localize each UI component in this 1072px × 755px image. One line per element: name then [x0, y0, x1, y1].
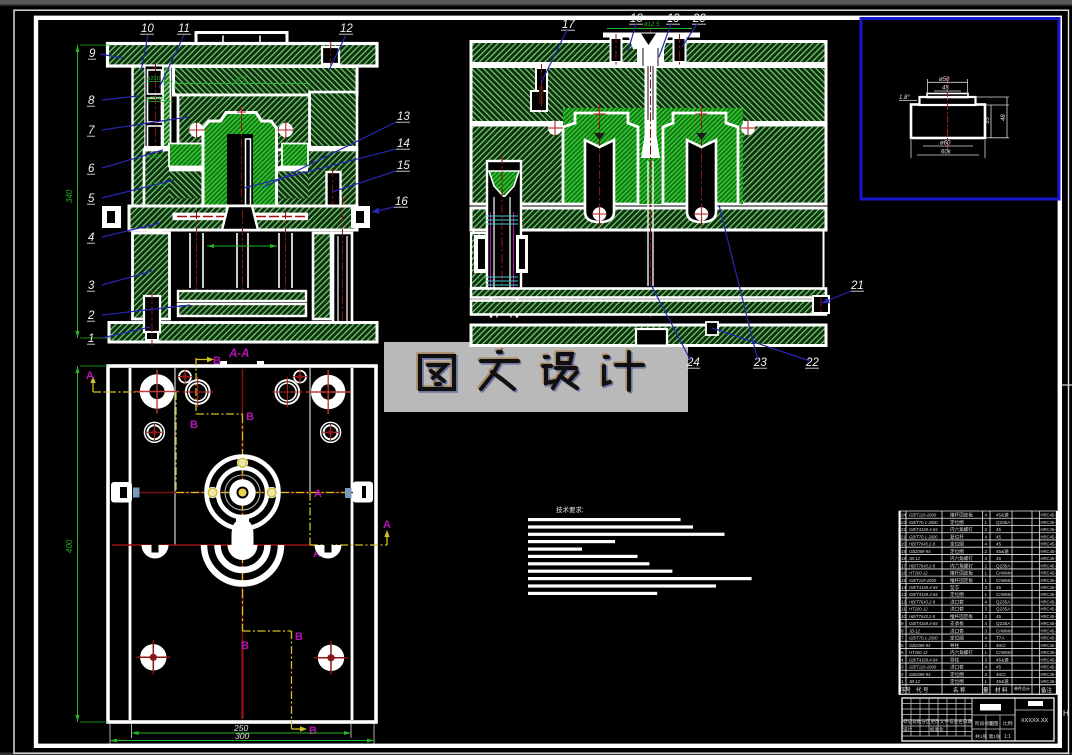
- svg-text:HT200-12: HT200-12: [909, 650, 928, 655]
- svg-text:8: 8: [901, 628, 904, 633]
- svg-text:7: 7: [901, 636, 904, 641]
- svg-text:技术要求:: 技术要求:: [556, 505, 584, 514]
- svg-text:GB/T70.1-2000: GB/T70.1-2000: [909, 636, 938, 641]
- svg-text:45: 45: [996, 527, 1002, 532]
- svg-text:3: 3: [985, 607, 988, 612]
- svg-text:定位圈: 定位圈: [950, 678, 964, 685]
- svg-text:HB/T7643.2-8: HB/T7643.2-8: [909, 614, 936, 619]
- svg-text:14: 14: [397, 138, 410, 150]
- svg-text:45: 45: [942, 86, 949, 92]
- svg-text:GB/T4169.4-84: GB/T4169.4-84: [909, 585, 938, 590]
- svg-text:定位圈: 定位圈: [950, 541, 964, 548]
- svg-text:3: 3: [985, 585, 988, 590]
- svg-text:3: 3: [985, 628, 988, 633]
- svg-text:T7A: T7A: [996, 636, 1005, 641]
- svg-text:复位杆: 复位杆: [950, 533, 964, 540]
- svg-text:HT200-12: HT200-12: [909, 571, 928, 576]
- svg-text:45: 45: [996, 665, 1002, 670]
- svg-text:1: 1: [985, 592, 988, 597]
- svg-text:GB2089-94: GB2089-94: [909, 643, 931, 648]
- svg-text:A: A: [86, 370, 94, 382]
- svg-text:GB/T70.1-2000: GB/T70.1-2000: [909, 534, 938, 539]
- svg-text:HB/T7643.2-8: HB/T7643.2-8: [909, 542, 936, 547]
- svg-text:GB2089-94: GB2089-94: [909, 549, 931, 554]
- svg-text:2: 2: [901, 672, 904, 677]
- svg-text:CrWMn: CrWMn: [996, 578, 1012, 583]
- svg-text:比例: 比例: [1003, 720, 1013, 727]
- svg-text:4: 4: [985, 556, 988, 561]
- svg-text:40Cr: 40Cr: [996, 672, 1006, 677]
- svg-text:11: 11: [178, 23, 190, 35]
- svg-text:400: 400: [65, 539, 74, 553]
- svg-text:45: 45: [996, 542, 1002, 547]
- svg-text:24: 24: [686, 357, 700, 369]
- svg-text:12: 12: [340, 23, 353, 35]
- svg-text:6: 6: [88, 163, 95, 175]
- svg-text:GB/T119-2000: GB/T119-2000: [909, 665, 937, 670]
- svg-text:9: 9: [901, 621, 904, 626]
- svg-text:340: 340: [65, 189, 74, 203]
- svg-text:GB/T4169.4-84: GB/T4169.4-84: [909, 527, 938, 532]
- svg-text:设计: 设计: [903, 726, 913, 733]
- svg-text:质量: 质量: [989, 720, 999, 727]
- svg-text:2: 2: [985, 643, 988, 648]
- svg-text:21: 21: [850, 280, 864, 292]
- svg-text:CrWMn: CrWMn: [996, 592, 1012, 597]
- svg-text:4: 4: [901, 657, 904, 662]
- svg-text:9: 9: [89, 48, 96, 60]
- svg-text:材 料: 材 料: [995, 686, 1008, 694]
- svg-text:B: B: [190, 419, 198, 431]
- svg-text:4: 4: [88, 232, 94, 244]
- svg-text:B: B: [241, 640, 249, 652]
- svg-text:A: A: [314, 488, 322, 500]
- svg-text:4: 4: [985, 542, 988, 547]
- svg-text:8: 8: [88, 95, 95, 107]
- svg-text:HT200-12: HT200-12: [909, 607, 928, 612]
- svg-text:22: 22: [805, 357, 819, 369]
- svg-text:Q235A: Q235A: [996, 520, 1011, 525]
- svg-text:1.8°: 1.8°: [899, 95, 910, 101]
- svg-text:60k: 60k: [941, 150, 952, 156]
- svg-text:单件总计: 单件总计: [1014, 685, 1030, 691]
- svg-text:6: 6: [901, 643, 904, 648]
- svg-text:45: 45: [996, 534, 1002, 539]
- svg-text:JB-12: JB-12: [908, 628, 921, 633]
- svg-text:JB-12: JB-12: [908, 679, 921, 684]
- svg-text:GB2089-94: GB2089-94: [909, 672, 931, 677]
- svg-text:XXXXX.XX: XXXXX.XX: [1021, 718, 1049, 724]
- svg-text:内六角螺钉: 内六角螺钉: [950, 562, 973, 569]
- svg-text:2: 2: [985, 549, 988, 554]
- svg-text:ø25f6: ø25f6: [148, 154, 162, 160]
- svg-text:GB/T4169.4-84: GB/T4169.4-84: [909, 592, 938, 597]
- svg-text:标记处数分区更改文件号签名日期: 标记处数分区更改文件号签名日期: [903, 718, 972, 725]
- svg-text:18: 18: [630, 13, 643, 25]
- svg-text:推杆固定板: 推杆固定板: [950, 570, 973, 577]
- svg-text:2: 2: [985, 614, 988, 619]
- svg-text:B: B: [309, 725, 317, 737]
- svg-text:4: 4: [985, 534, 988, 539]
- svg-text:48: 48: [1001, 114, 1007, 121]
- svg-text:内六角螺钉: 内六角螺钉: [950, 649, 973, 656]
- svg-text:40Cr: 40Cr: [996, 643, 1006, 648]
- svg-text:Q235A: Q235A: [996, 563, 1011, 568]
- svg-text:CrWMn: CrWMn: [996, 571, 1012, 576]
- svg-text:浇口套: 浇口套: [950, 664, 964, 671]
- svg-text:定位圈: 定位圈: [950, 519, 964, 526]
- svg-text:CrWMn: CrWMn: [996, 650, 1012, 655]
- svg-text:2: 2: [87, 310, 95, 322]
- svg-text:1: 1: [985, 679, 988, 684]
- svg-text:1: 1: [985, 650, 988, 655]
- svg-text:共1张 第1张: 共1张 第1张: [975, 733, 1001, 740]
- svg-text:定位圈: 定位圈: [950, 591, 964, 598]
- svg-text:17: 17: [562, 19, 575, 31]
- svg-text:2: 2: [985, 563, 988, 568]
- svg-text:4: 4: [985, 665, 988, 670]
- svg-text:4: 4: [985, 513, 988, 518]
- svg-text:推杆固定板: 推杆固定板: [950, 577, 973, 584]
- svg-text:1: 1: [985, 578, 988, 583]
- svg-text:45: 45: [996, 585, 1002, 590]
- svg-text:1: 1: [88, 333, 94, 345]
- svg-text:名 称: 名 称: [953, 686, 966, 694]
- svg-text:导柱: 导柱: [950, 656, 960, 663]
- svg-text:GB/T119-2000: GB/T119-2000: [909, 513, 937, 518]
- svg-text:13: 13: [397, 111, 410, 123]
- svg-text:ø25H6: ø25H6: [147, 96, 164, 102]
- svg-text:35: 35: [985, 117, 991, 124]
- svg-text:ø50: ø50: [939, 77, 950, 83]
- svg-text:23: 23: [753, 357, 767, 369]
- svg-text:11: 11: [901, 607, 906, 612]
- svg-text:A: A: [383, 519, 391, 531]
- svg-text:A-A: A-A: [228, 348, 249, 360]
- svg-text:1: 1: [901, 679, 904, 684]
- svg-text:内六角螺钉: 内六角螺钉: [950, 526, 973, 533]
- svg-text:量: 量: [983, 687, 989, 694]
- svg-text:浇口套: 浇口套: [950, 606, 964, 613]
- svg-text:GB/T70.1-2000: GB/T70.1-2000: [909, 520, 938, 525]
- svg-text:16: 16: [395, 196, 408, 208]
- svg-text:定位圈: 定位圈: [950, 671, 964, 678]
- svg-text:3: 3: [901, 665, 904, 670]
- svg-text:19: 19: [667, 13, 680, 25]
- svg-text:推杆固定板: 推杆固定板: [950, 512, 973, 519]
- svg-text:GB/T119-2000: GB/T119-2000: [909, 578, 937, 583]
- svg-text:4: 4: [985, 621, 988, 626]
- svg-text:ø60: ø60: [940, 141, 951, 147]
- svg-text:3: 3: [985, 657, 988, 662]
- svg-text:1:1: 1:1: [1004, 734, 1011, 740]
- svg-text:8°5: 8°5: [236, 76, 247, 84]
- svg-text:Q235A: Q235A: [996, 600, 1011, 605]
- svg-text:7: 7: [88, 125, 95, 137]
- svg-text:GB/T4169.4-84: GB/T4169.4-84: [909, 657, 938, 662]
- svg-text:45: 45: [996, 614, 1002, 619]
- svg-text:300: 300: [235, 731, 249, 741]
- svg-text:1: 1: [985, 520, 988, 525]
- svg-text:B: B: [246, 411, 254, 423]
- svg-text:GB/T4169.4-84: GB/T4169.4-84: [909, 621, 938, 626]
- svg-text:2: 2: [985, 527, 988, 532]
- svg-text:内六角螺钉: 内六角螺钉: [950, 555, 973, 562]
- svg-text:3: 3: [985, 672, 988, 677]
- svg-text:HB/T7643.2-8: HB/T7643.2-8: [909, 563, 936, 568]
- svg-text:定位圈: 定位圈: [950, 548, 964, 555]
- svg-text:1: 1: [985, 571, 988, 576]
- svg-text:浇口套: 浇口套: [950, 627, 964, 634]
- svg-text:备注: 备注: [1041, 686, 1053, 694]
- svg-text:JB-12: JB-12: [908, 556, 921, 561]
- svg-text:导柱: 导柱: [950, 642, 960, 649]
- svg-text:4: 4: [985, 636, 988, 641]
- svg-text:Q235A: Q235A: [996, 607, 1011, 612]
- svg-text:推杆固定板: 推杆固定板: [950, 613, 973, 620]
- svg-text:B: B: [295, 631, 303, 643]
- svg-text:定位圈: 定位圈: [950, 635, 964, 642]
- svg-text:15: 15: [397, 160, 410, 172]
- svg-text:10: 10: [141, 23, 154, 35]
- svg-text:型芯: 型芯: [950, 584, 960, 590]
- svg-text:ø12.5: ø12.5: [644, 22, 660, 28]
- svg-text:20: 20: [692, 13, 706, 25]
- svg-text:Q235A: Q235A: [996, 621, 1011, 626]
- svg-text:5: 5: [88, 193, 95, 205]
- svg-text:ø25f7: ø25f7: [147, 76, 161, 82]
- svg-text:4: 4: [985, 600, 988, 605]
- svg-text:3: 3: [88, 280, 95, 292]
- svg-text:标准化: 标准化: [930, 726, 944, 733]
- svg-text:H: H: [1063, 709, 1069, 718]
- svg-text:代 号: 代 号: [916, 686, 929, 694]
- svg-text:浇口套: 浇口套: [950, 599, 964, 606]
- svg-text:5: 5: [901, 650, 904, 655]
- svg-text:HB/T7643.2-8: HB/T7643.2-8: [909, 600, 936, 605]
- svg-text:支承板: 支承板: [950, 620, 964, 627]
- svg-text:45: 45: [996, 556, 1002, 561]
- svg-text:B: B: [213, 355, 221, 367]
- svg-text:CrWMn: CrWMn: [996, 628, 1012, 633]
